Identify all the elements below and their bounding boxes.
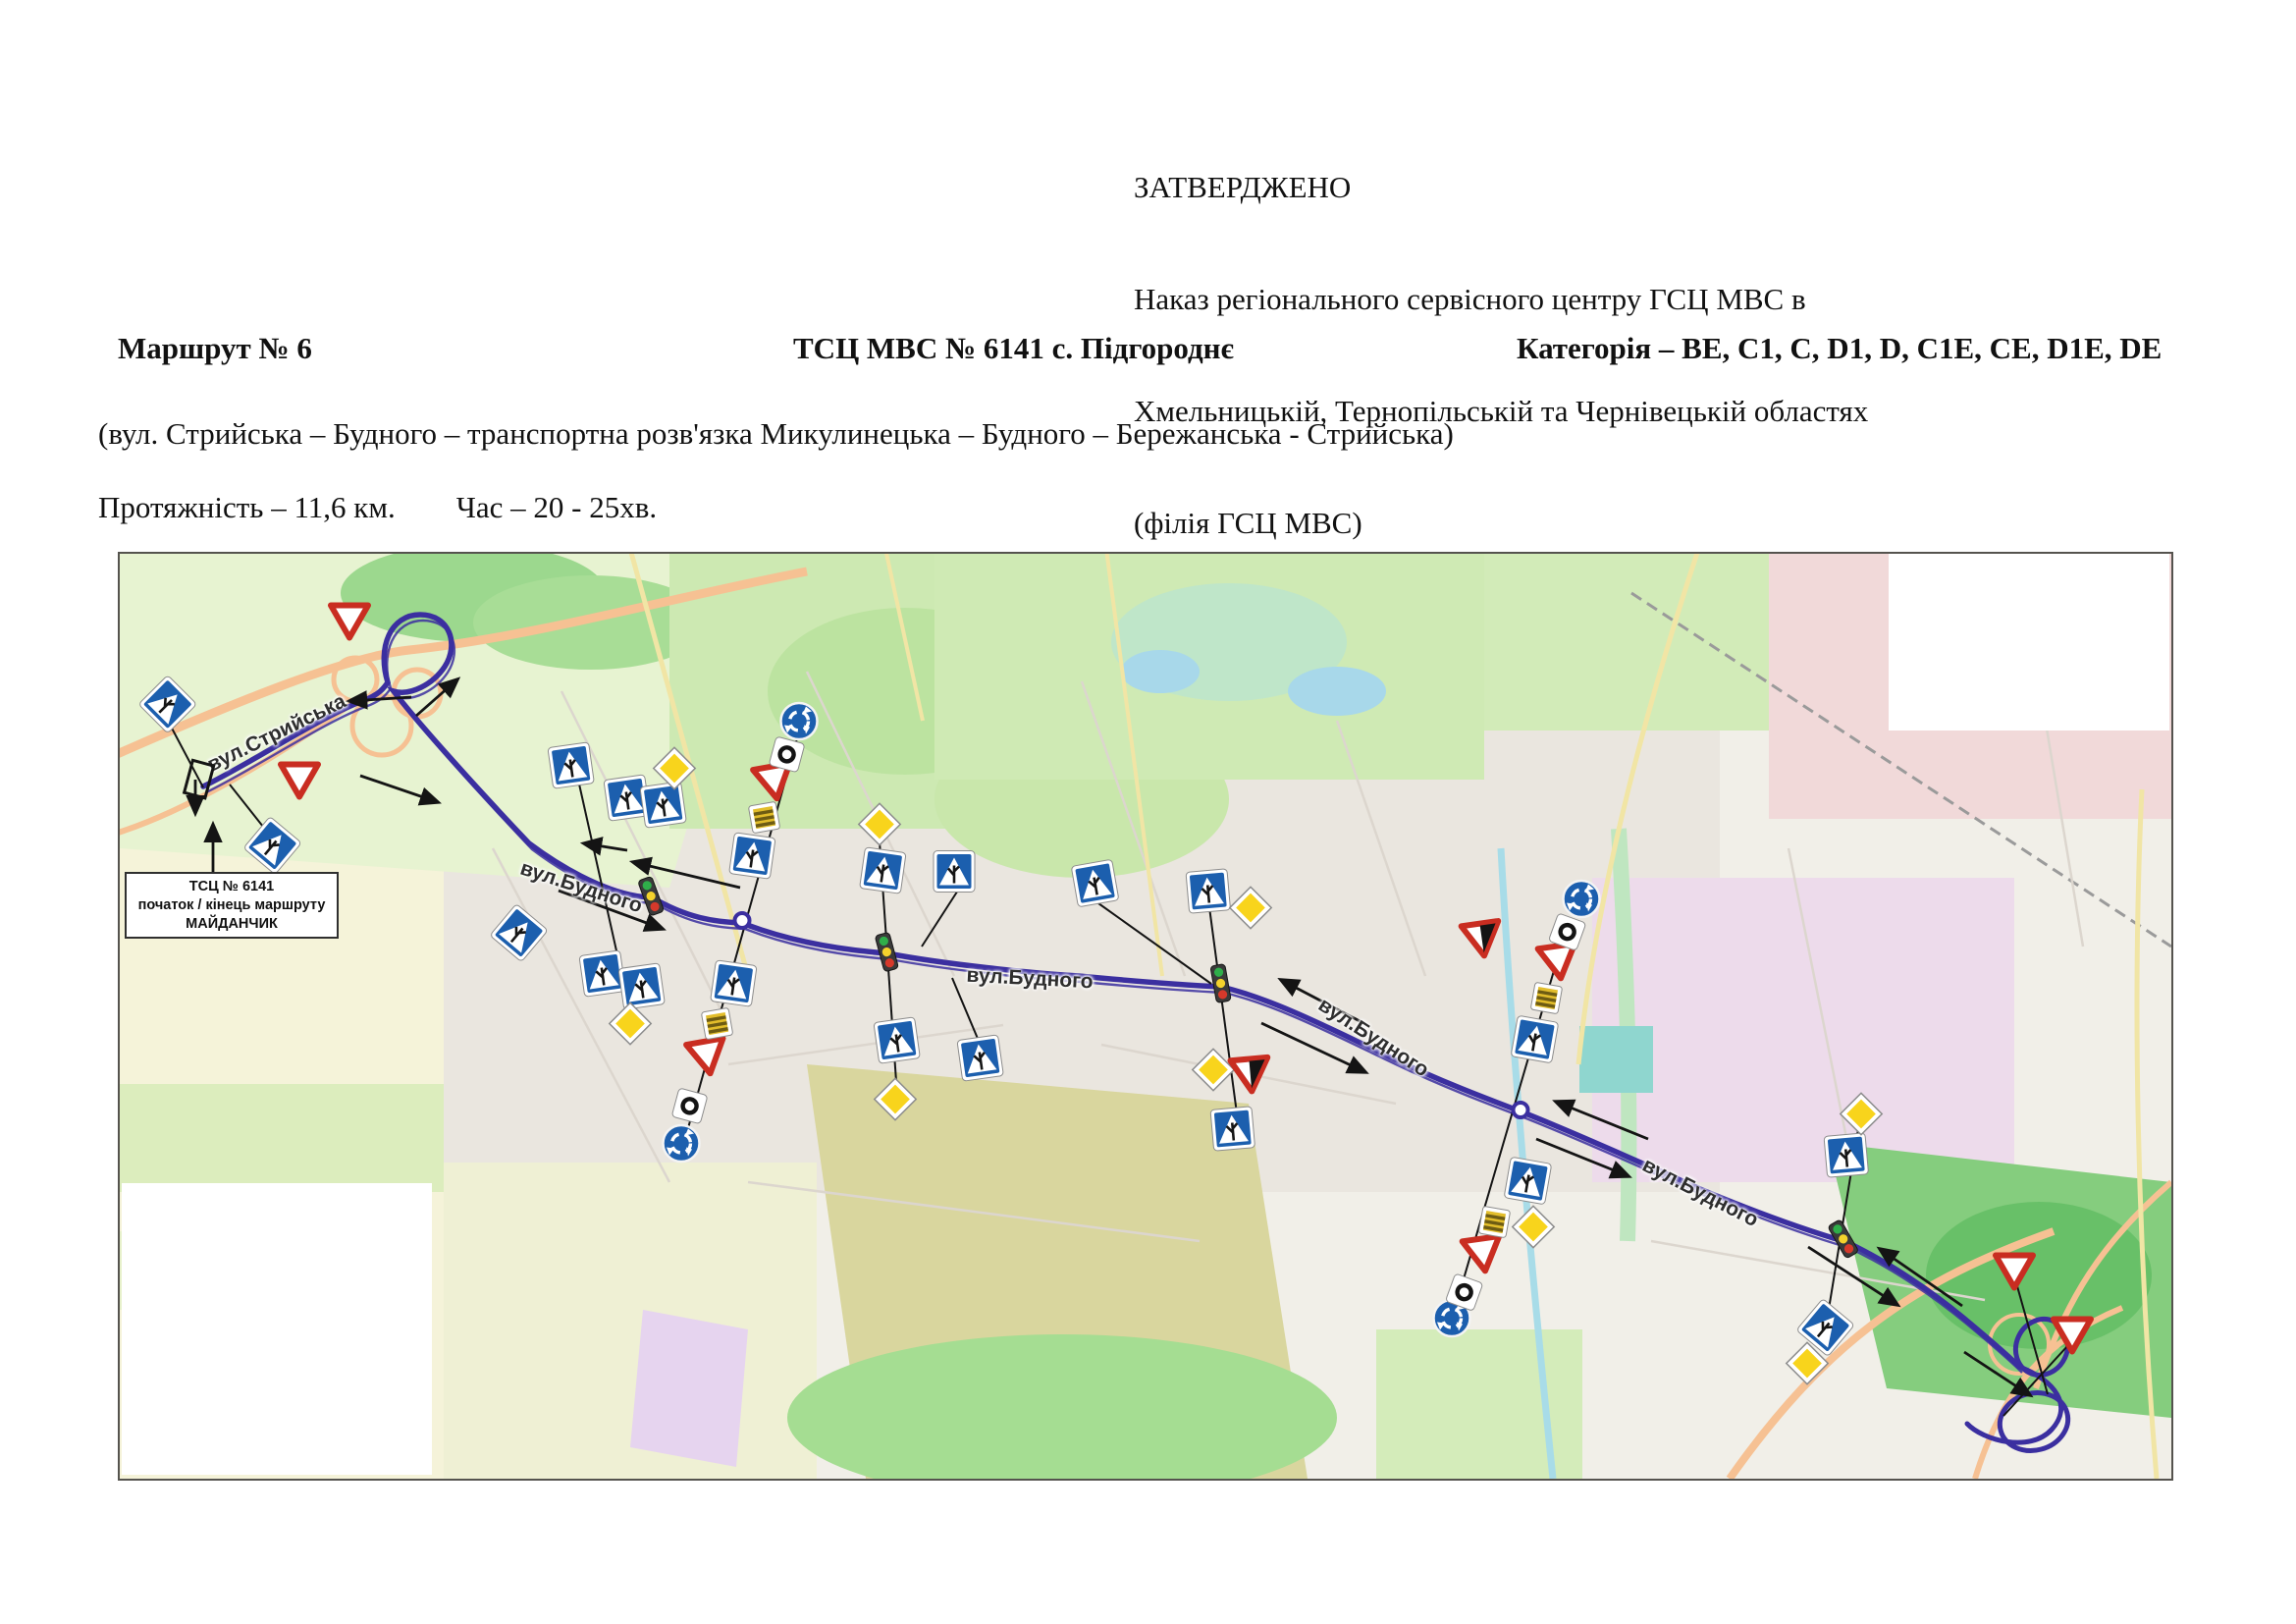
main-road-direction-sign (547, 741, 596, 795)
document-page: { "approval": { "line1": "ЗАТВЕРДЖЕНО", … (0, 0, 2296, 1624)
start-end-label-box: ТСЦ № 6141 початок / кінець маршруту МАЙ… (125, 872, 339, 939)
hatched-sign (747, 800, 782, 839)
priority-road-sign (1509, 1203, 1558, 1257)
main-road-direction-sign (727, 832, 776, 886)
main-road-direction-sign (933, 850, 976, 898)
tsc-title: ТСЦ МВС № 6141 с. Підгороднє (793, 331, 1234, 366)
approval-line: Наказ регіонального сервісного центру ГС… (1134, 281, 1868, 318)
main-road-direction-sign (858, 846, 907, 900)
priority-road-sign (1837, 1090, 1886, 1144)
main-road-direction-sign (1070, 858, 1121, 913)
tsc-box-line: початок / кінець маршруту (127, 896, 337, 915)
priority-road-sign (855, 800, 904, 854)
yield-sign (278, 761, 321, 805)
route-map: вул.Стрийськавул.Будноговул.Будноговул.Б… (118, 552, 2173, 1481)
yield-sign (1227, 1054, 1274, 1102)
route-description: (вул. Стрийська – Будного – транспортна … (98, 416, 1454, 452)
route-number-title: Маршрут № 6 (118, 331, 312, 366)
roundabout-sign (662, 1124, 701, 1168)
main-road-direction-sign (1209, 1106, 1256, 1158)
category-title: Категорія – BE, C1, C, D1, D, C1E, CE, D… (1517, 331, 2162, 366)
priority-road-sign (650, 744, 699, 798)
yield-sign (2051, 1316, 2094, 1360)
route-stats: Протяжність – 11,6 км.Час – 20 - 25хв. (98, 490, 657, 525)
priority-road-sign (606, 1000, 655, 1054)
hatched-sign (700, 1006, 735, 1046)
yield-sign (328, 602, 371, 646)
tsc-box-line: ТСЦ № 6141 (127, 878, 337, 896)
route-time: Час – 20 - 25хв. (456, 490, 657, 524)
yield-sign (1458, 917, 1507, 967)
approval-line: ЗАТВЕРДЖЕНО (1134, 169, 1868, 206)
priority-road-sign (871, 1075, 920, 1129)
priority-road-sign (1783, 1339, 1832, 1393)
route-node (1511, 1101, 1530, 1125)
main-road-direction-sign (709, 959, 758, 1013)
approval-line: (філія ГСЦ МВС) (1134, 505, 1868, 542)
main-road-direction-sign (1509, 1014, 1560, 1069)
direction-arrows-layer (120, 554, 2171, 1479)
main-road-direction-sign (956, 1034, 1005, 1088)
route-length: Протяжність – 11,6 км. (98, 490, 396, 524)
yield-sign (1993, 1252, 2036, 1296)
hatched-sign (1476, 1205, 1512, 1244)
hatched-sign (1528, 981, 1564, 1020)
route-node (732, 911, 752, 936)
priority-road-sign (1226, 884, 1275, 938)
main-road-direction-sign (873, 1016, 922, 1070)
tsc-box-line: МАЙДАНЧИК (127, 915, 337, 934)
main-road-direction-sign (1185, 868, 1232, 920)
